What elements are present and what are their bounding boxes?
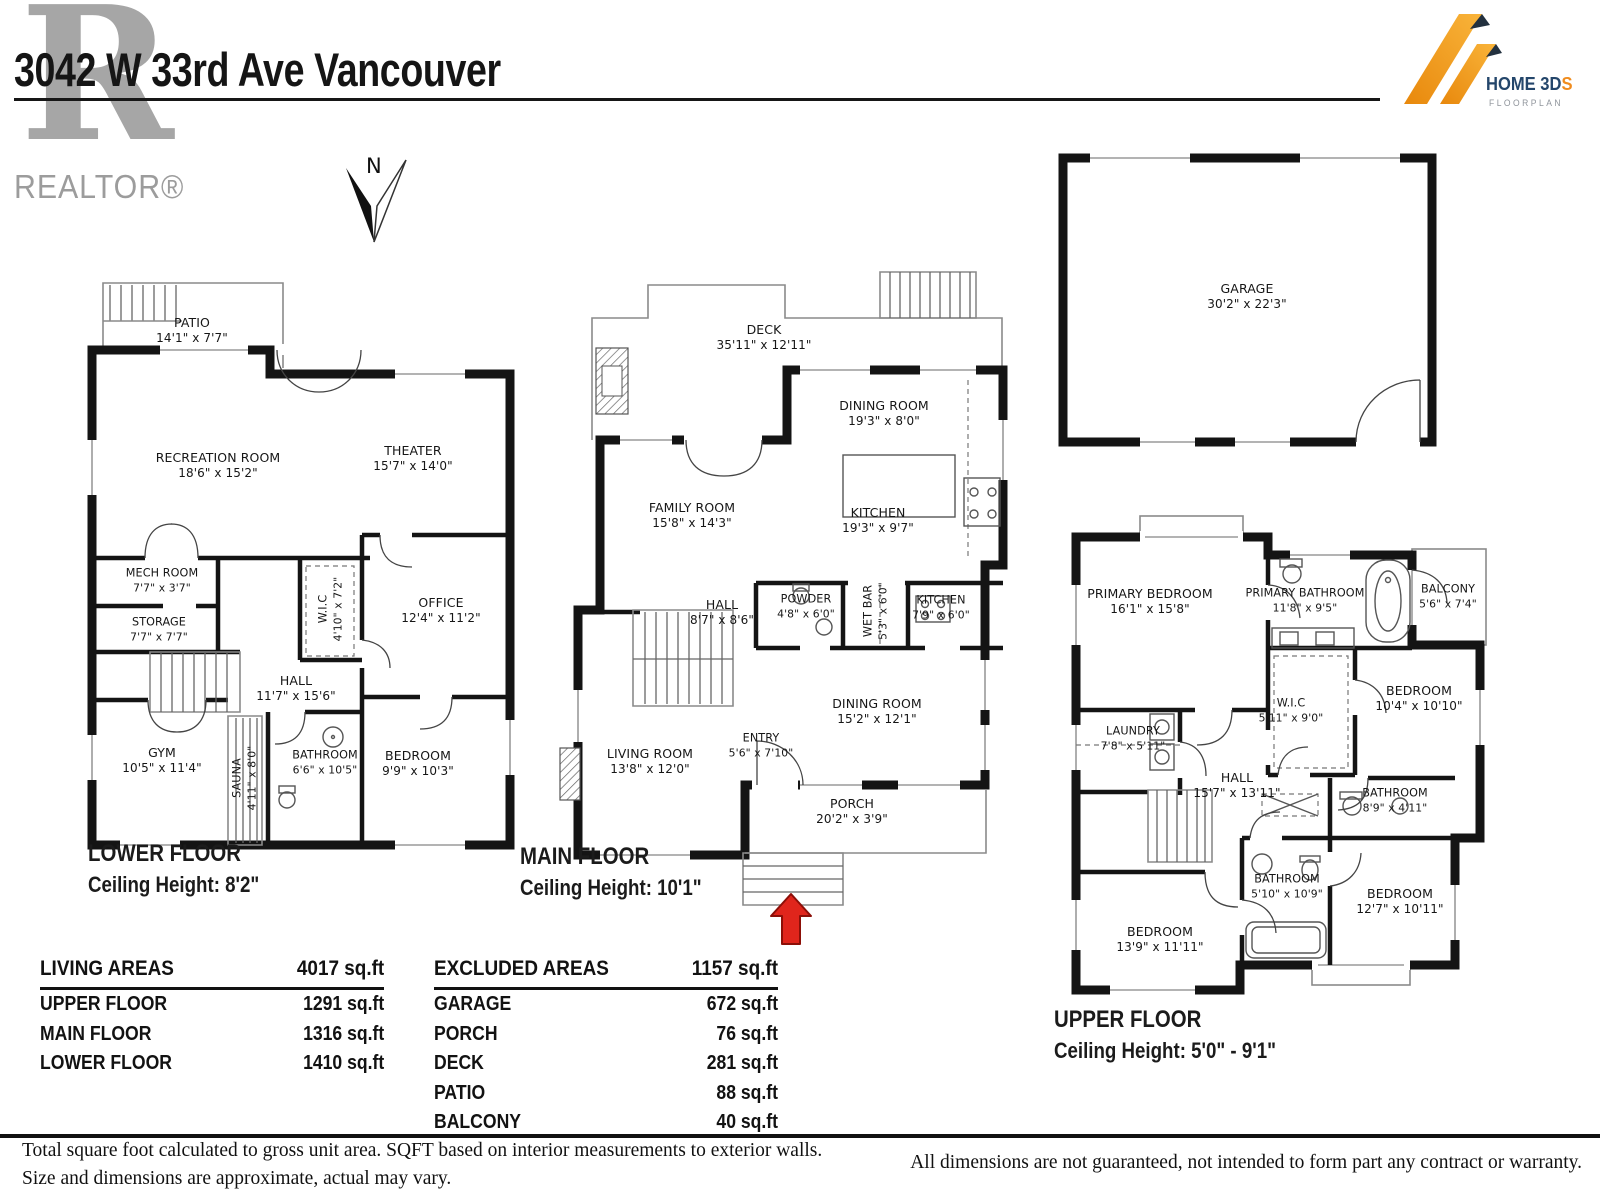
room-label-entry: ENTRY5'6" x 7'10" <box>729 732 794 761</box>
room-label-bathroom-upper-2: BATHROOM5'10" x 10'9" <box>1251 873 1323 902</box>
realtor-wordmark: REALTOR® <box>14 168 184 206</box>
entrance-arrow-icon <box>771 894 811 944</box>
table-row: PATIO88 sq.ft <box>434 1082 778 1112</box>
room-label-bedroom-3: BEDROOM12'7" x 10'11" <box>1356 886 1443 918</box>
table-rule <box>40 987 384 990</box>
room-label-dining-room-2: DINING ROOM15'2" x 12'1" <box>832 696 922 728</box>
room-label-hall-upper: HALL15'7" x 13'11" <box>1193 770 1280 802</box>
room-label-theater: THEATER15'7" x 14'0" <box>373 443 452 475</box>
home3ds-subtitle: FLOORPLAN <box>1489 98 1563 108</box>
table-row: UPPER FLOOR1291 sq.ft <box>40 993 384 1023</box>
footer-note-line1: Total square foot calculated to gross un… <box>22 1140 822 1162</box>
table-row: DECK281 sq.ft <box>434 1052 778 1082</box>
room-label-hall-main: HALL8'7" x 8'6" <box>690 597 754 629</box>
room-label-primary-bathroom: PRIMARY BATHROOM11'8" x 9'5" <box>1246 587 1365 616</box>
lower-floor-caption: LOWER FLOORCeiling Height: 8'2" <box>88 838 259 899</box>
table-rule <box>434 987 778 990</box>
room-label-recreation-room: RECREATION ROOM18'6" x 15'2" <box>156 450 281 482</box>
excluded-areas-header: EXCLUDED AREAS1157 sq.ft <box>434 956 778 986</box>
room-label-balcony: BALCONY5'6" x 7'4" <box>1419 583 1477 612</box>
room-label-porch: PORCH20'2" x 3'9" <box>816 796 888 828</box>
footer-disclaimer: All dimensions are not guaranteed, not i… <box>910 1152 1582 1174</box>
room-label-primary-bedroom: PRIMARY BEDROOM16'1" x 15'8" <box>1087 586 1213 618</box>
room-label-wic-lower: W.I.C4'10" x 7'2" <box>317 577 346 642</box>
table-row: MAIN FLOOR1316 sq.ft <box>40 1023 384 1053</box>
footer-note-line2: Size and dimensions are approximate, act… <box>22 1168 451 1190</box>
footer-divider <box>0 1134 1600 1138</box>
room-label-deck: DECK35'11" x 12'11" <box>717 322 812 354</box>
room-label-sauna: SAUNA4'11" x 8'0" <box>231 746 260 811</box>
room-label-gym: GYM10'5" x 11'4" <box>122 745 201 777</box>
excluded-areas-table: EXCLUDED AREAS1157 sq.ft GARAGE672 sq.ft… <box>434 956 778 1141</box>
room-label-dining-room: DINING ROOM19'3" x 8'0" <box>839 398 929 430</box>
room-label-patio: PATIO14'1" x 7'7" <box>156 315 228 347</box>
room-label-kitchen-2: KITCHEN7'9" x 6'0" <box>912 594 970 623</box>
room-label-bedroom-4: BEDROOM13'9" x 11'11" <box>1116 924 1203 956</box>
room-label-laundry: LAUNDRY7'8" x 5'11" <box>1101 725 1166 754</box>
room-label-kitchen: KITCHEN19'3" x 9'7" <box>842 505 914 537</box>
room-label-mech-room: MECH ROOM7'7" x 3'7" <box>126 567 198 596</box>
room-label-wic-upper: W.I.C5'11" x 9'0" <box>1259 697 1324 726</box>
north-label: N <box>366 154 382 178</box>
room-label-bathroom-lower: BATHROOM6'6" x 10'5" <box>292 749 358 778</box>
page-title: 3042 W 33rd Ave Vancouver <box>14 42 501 97</box>
room-label-family-room: FAMILY ROOM15'8" x 14'3" <box>649 500 735 532</box>
room-label-storage: STORAGE7'7" x 7'7" <box>130 616 188 645</box>
room-label-bedroom-lower: BEDROOM9'9" x 10'3" <box>382 748 454 780</box>
title-divider <box>14 98 1380 101</box>
room-label-hall-lower: HALL11'7" x 15'6" <box>256 673 335 705</box>
home3ds-logo: HOME 3DS FLOORPLAN <box>1398 8 1588 118</box>
living-areas-header: LIVING AREAS4017 sq.ft <box>40 956 384 986</box>
room-label-garage: GARAGE30'2" x 22'3" <box>1207 281 1286 313</box>
home3ds-wordmark: HOME 3DS <box>1486 74 1573 95</box>
main-floor-caption: MAIN FLOORCeiling Height: 10'1" <box>520 841 702 902</box>
room-label-living-room: LIVING ROOM13'8" x 12'0" <box>607 746 693 778</box>
table-row: GARAGE672 sq.ft <box>434 993 778 1023</box>
room-label-bathroom-upper-1: BATHROOM8'9" x 4'11" <box>1362 787 1428 816</box>
room-label-wet-bar: WET BAR5'3" x 6'0" <box>862 582 891 640</box>
realtor-logo: R REALTOR® <box>12 0 192 215</box>
floorplan-page: R REALTOR® 3042 W 33rd Ave Vancouver HOM… <box>0 0 1600 1200</box>
room-label-powder: POWDER4'8" x 6'0" <box>777 593 835 622</box>
room-label-office: OFFICE12'4" x 11'2" <box>401 595 480 627</box>
table-row: LOWER FLOOR1410 sq.ft <box>40 1052 384 1082</box>
upper-floor-caption: UPPER FLOORCeiling Height: 5'0" - 9'1" <box>1054 1004 1276 1065</box>
room-label-bedroom-2: BEDROOM10'4" x 10'10" <box>1375 683 1462 715</box>
table-row: PORCH76 sq.ft <box>434 1023 778 1053</box>
living-areas-table: LIVING AREAS4017 sq.ft UPPER FLOOR1291 s… <box>40 956 384 1082</box>
